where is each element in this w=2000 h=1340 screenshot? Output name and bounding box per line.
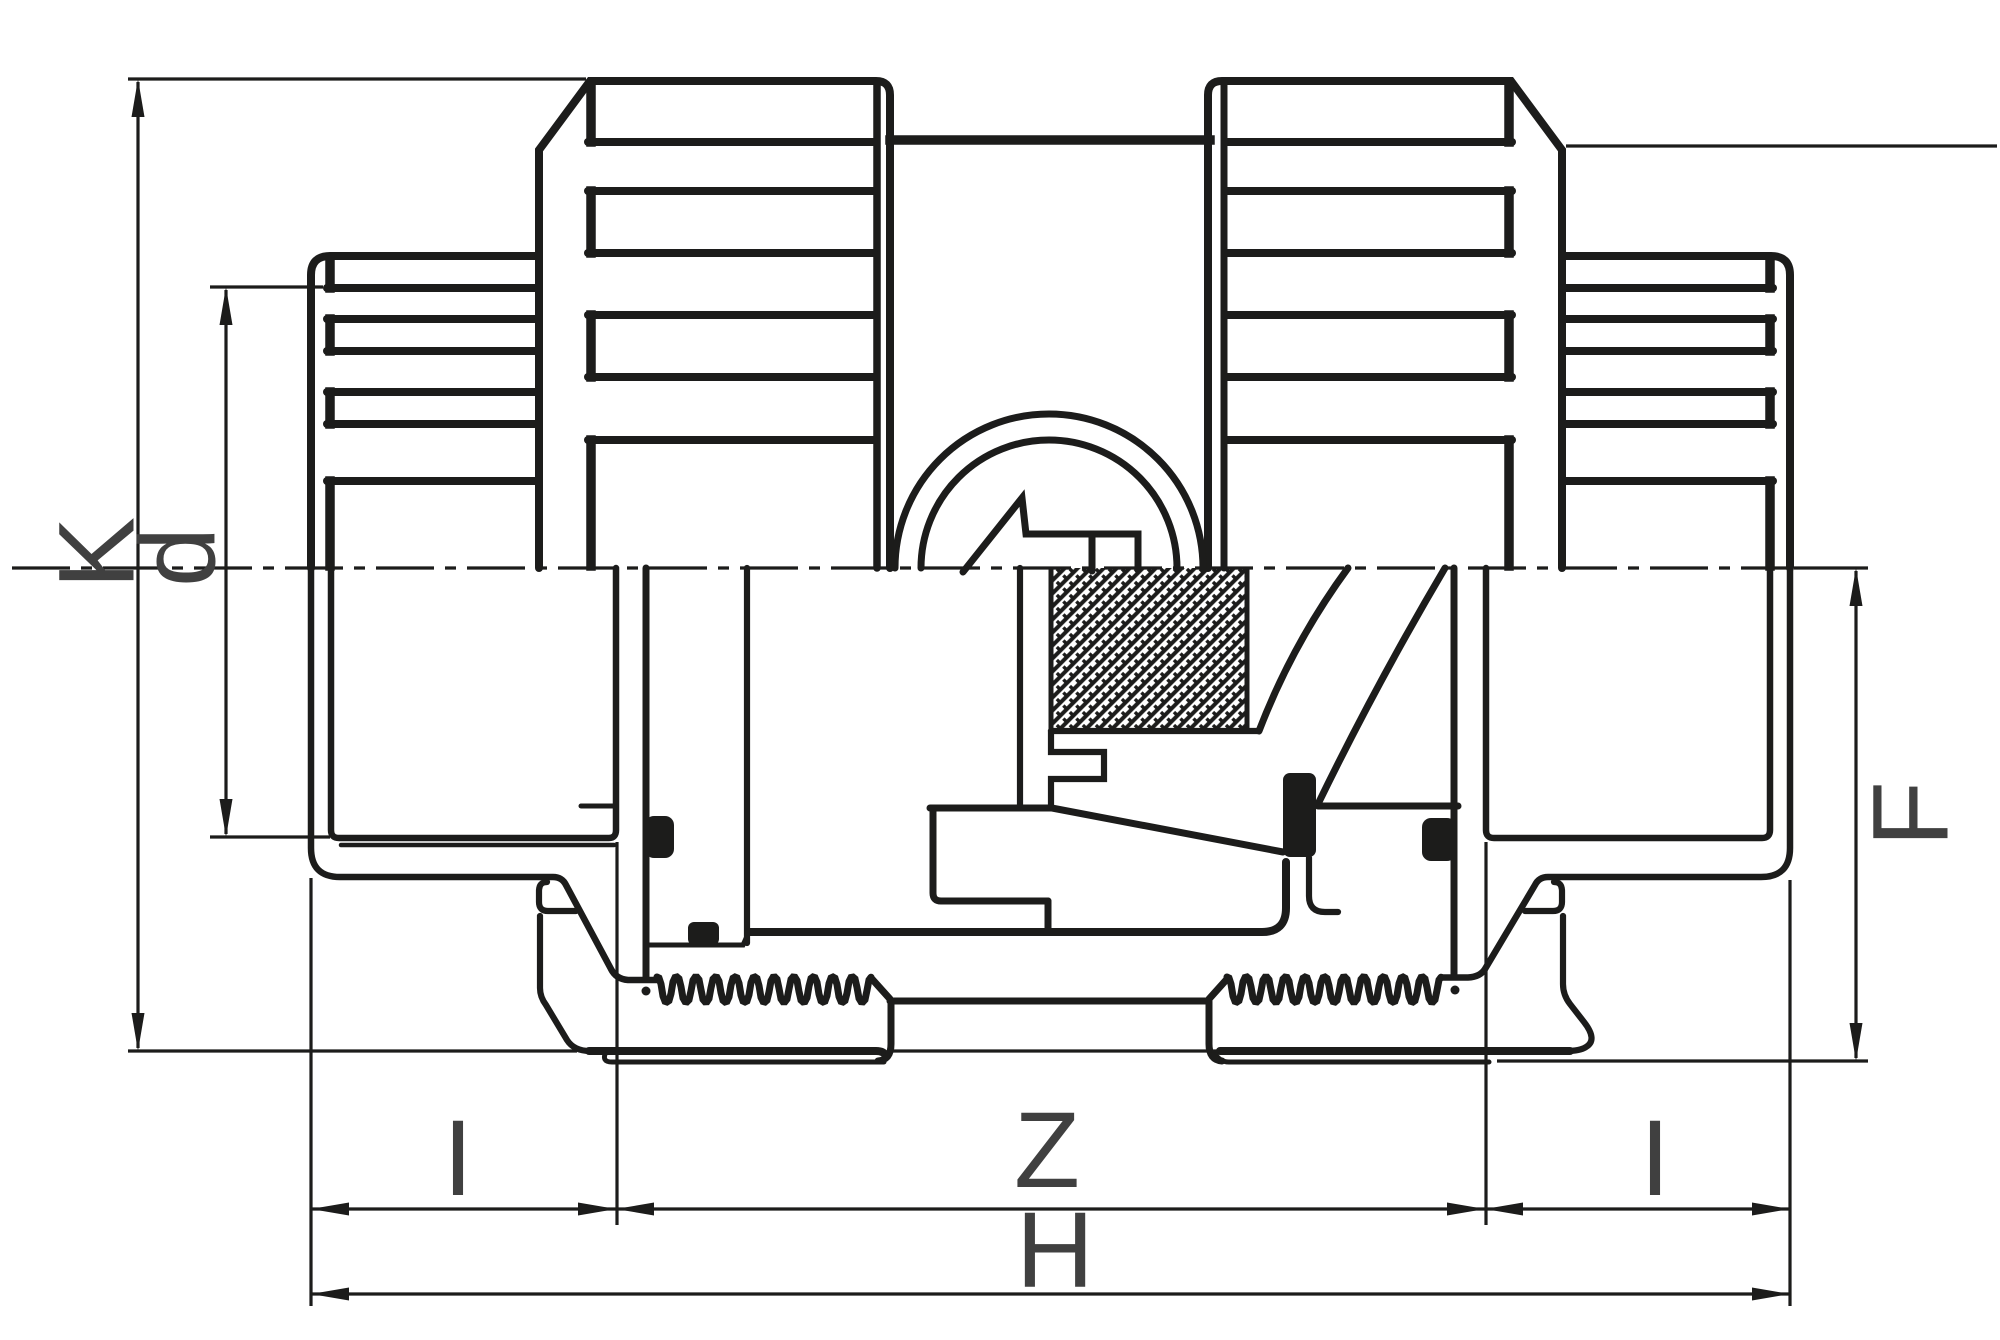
svg-text:I: I (443, 1097, 473, 1218)
svg-text:I: I (1640, 1097, 1670, 1218)
svg-text:d: d (117, 527, 238, 587)
svg-text:H: H (1016, 1189, 1094, 1310)
svg-text:F: F (1850, 781, 1971, 847)
